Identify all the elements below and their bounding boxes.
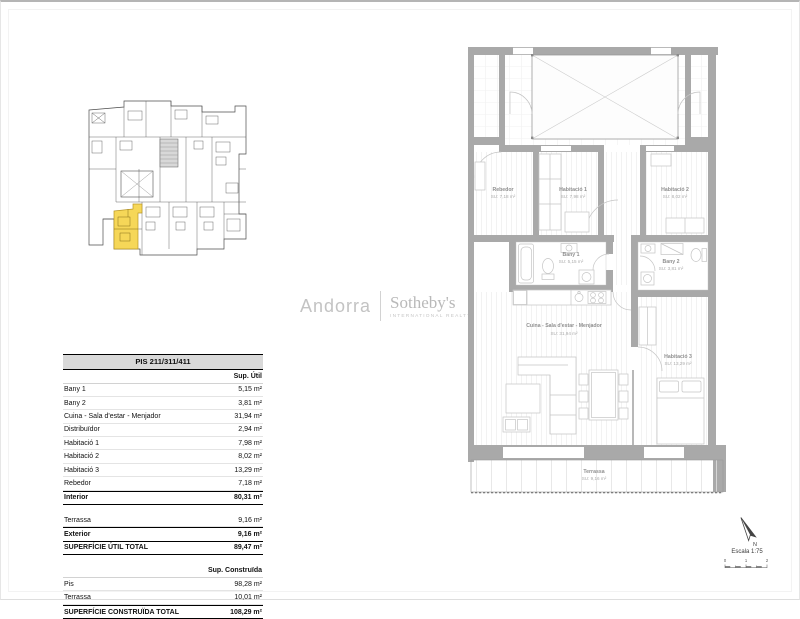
brand-logo: Andorra Sotheby's INTERNATIONAL REALTY	[300, 291, 472, 321]
brand-tagline: INTERNATIONAL REALTY	[390, 314, 471, 319]
room-label-habitacio1: Habitació 1	[559, 187, 587, 193]
chair	[619, 408, 628, 419]
room-area-habitacio3: SU: 13,29 m²	[664, 361, 692, 366]
apartment-floorplan: Rebedor SU: 7,18 m² Habitació 1 SU: 7,98…	[461, 42, 731, 522]
scale-caption: Escala 1:75	[702, 549, 792, 555]
room-area-habitacio1: SU: 7,98 m²	[561, 194, 586, 199]
table-row: Habitació 2 8,02 m²	[63, 450, 263, 463]
north-arrow-icon: N	[725, 514, 769, 550]
table-title: PIS 211/311/411	[63, 354, 263, 370]
table-row: Terrassa 9,16 m²	[63, 514, 263, 527]
surface-table: PIS 211/311/411 Sup. Útil Bany 1 5,15 m²…	[63, 354, 263, 619]
row-value: 2,94 m²	[238, 426, 262, 433]
row-label: SUPERFÍCIE ÚTIL TOTAL	[64, 544, 148, 551]
room-label-habitacio3: Habitació 3	[664, 354, 692, 360]
chair	[619, 374, 628, 385]
chair	[579, 374, 588, 385]
table-row: Habitació 3 13,29 m²	[63, 464, 263, 477]
table-row: Terrassa 10,01 m²	[63, 591, 263, 604]
room-label-bany2: Bany 2	[662, 259, 679, 265]
exterior-total-row: Exterior 9,16 m²	[63, 527, 263, 540]
kitchen-counter	[513, 290, 611, 305]
mini-partitions	[89, 101, 246, 255]
bedroom2-furniture	[651, 154, 671, 166]
table-row: Distribuïdor 2,94 m²	[63, 424, 263, 437]
row-label: Habitació 1	[64, 440, 99, 447]
brand-divider	[380, 291, 381, 321]
scale-tick-1: 1	[745, 558, 748, 563]
row-value: 89,47 m²	[234, 544, 262, 551]
mini-building-outline	[89, 101, 246, 255]
chair	[579, 408, 588, 419]
table-row: Cuina - Sala d'estar - Menjador 31,94 m²	[63, 410, 263, 423]
table-gap	[63, 555, 263, 564]
row-label: Habitació 2	[64, 453, 99, 460]
brand-right: Sotheby's	[390, 293, 471, 313]
room-label-bany1: Bany 1	[562, 252, 579, 258]
scale-bar: 0 1 2	[722, 557, 772, 573]
row-value: 7,98 m²	[238, 440, 262, 447]
brand-left: Andorra	[300, 296, 371, 317]
row-label: Exterior	[64, 531, 90, 538]
row-label: Distribuïdor	[64, 426, 100, 433]
row-value: 108,29 m²	[230, 609, 262, 616]
room-label-habitacio2: Habitació 2	[661, 187, 689, 193]
row-value: 13,29 m²	[234, 467, 262, 474]
row-value: 9,16 m²	[238, 531, 262, 538]
dining-table	[589, 370, 618, 420]
room-area-terrassa: SU: 9,16 m²	[582, 476, 607, 481]
construida-col-header: Sup. Construïda	[63, 564, 263, 578]
building-overview-plan	[76, 97, 256, 257]
row-value: 98,28 m²	[234, 581, 262, 588]
row-label: Habitació 3	[64, 467, 99, 474]
room-label-terrassa: Terrassa	[583, 469, 604, 475]
row-value: 80,31 m²	[234, 494, 262, 501]
construida-grand-total-row: SUPERFÍCIE CONSTRUÏDA TOTAL 108,29 m²	[63, 605, 263, 619]
row-label: Interior	[64, 494, 88, 501]
row-label: Terrassa	[64, 517, 91, 524]
row-label: Cuina - Sala d'estar - Menjador	[64, 413, 161, 420]
table-row: Bany 1 5,15 m²	[63, 384, 263, 397]
table-row: Rebedor 7,18 m²	[63, 477, 263, 490]
row-label: Pis	[64, 581, 74, 588]
room-area-habitacio2: SU: 8,02 m²	[663, 194, 688, 199]
row-label: Bany 2	[64, 400, 86, 407]
row-value: 5,15 m²	[238, 386, 262, 393]
mini-courtyard	[121, 139, 178, 197]
row-value: 31,94 m²	[234, 413, 262, 420]
chair	[579, 391, 588, 402]
row-label: Bany 1	[64, 386, 86, 393]
util-grand-total-row: SUPERFÍCIE ÚTIL TOTAL 89,47 m²	[63, 541, 263, 555]
row-value: 7,18 m²	[238, 480, 262, 487]
coffee-table	[506, 384, 540, 413]
room-label-cuina: Cuina - Sala d'estar - Menjador	[526, 323, 602, 329]
util-col-header: Sup. Útil	[63, 370, 263, 384]
cabinet	[475, 162, 485, 190]
row-label: SUPERFÍCIE CONSTRUÏDA TOTAL	[64, 609, 179, 616]
construida-header-label: Sup. Construïda	[208, 567, 262, 574]
util-header-label: Sup. Útil	[234, 373, 262, 380]
row-value: 8,02 m²	[238, 453, 262, 460]
interior-total-row: Interior 80,31 m²	[63, 491, 263, 505]
courtyard	[531, 54, 679, 139]
washer	[579, 270, 594, 284]
table-row: Bany 2 3,81 m²	[63, 397, 263, 410]
toilet	[543, 259, 554, 274]
row-label: Rebedor	[64, 480, 91, 487]
scale-tick-2: 2	[766, 558, 769, 563]
row-value: 9,16 m²	[238, 517, 262, 524]
row-value: 3,81 m²	[238, 400, 262, 407]
table-row: Pis 98,28 m²	[63, 578, 263, 591]
table-row: Habitació 1 7,98 m²	[63, 437, 263, 450]
row-value: 10,01 m²	[234, 594, 262, 601]
chair	[619, 391, 628, 402]
row-label: Terrassa	[64, 594, 91, 601]
bedroom1-furniture	[565, 212, 589, 232]
room-area-bany1: SU: 5,15 m²	[559, 259, 584, 264]
toilet	[691, 249, 701, 262]
washer	[641, 272, 654, 285]
floorplan-sheet: Andorra Sotheby's INTERNATIONAL REALTY P…	[0, 0, 800, 600]
room-area-cuina: SU: 31,94 m²	[550, 331, 578, 336]
north-label: N	[753, 542, 757, 548]
scale-tick-0: 0	[724, 558, 727, 563]
fridge	[514, 291, 527, 305]
room-area-rebedor: SU: 7,18 m²	[491, 194, 516, 199]
room-area-bany2: SU: 3,81 m²	[659, 266, 684, 271]
table-gap	[63, 505, 263, 514]
room-label-rebedor: Rebedor	[492, 187, 513, 193]
